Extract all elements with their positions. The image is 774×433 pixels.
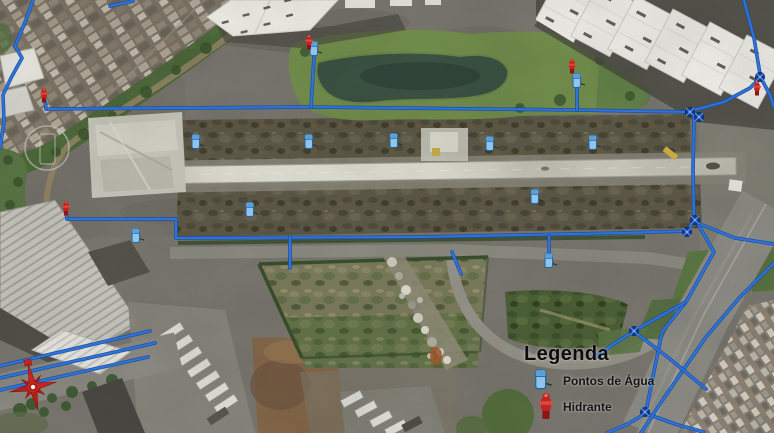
water-pipe-connector-east: [693, 116, 694, 219]
water-point-marker: [545, 254, 557, 268]
water-pipe-curve-northeast: [694, 79, 759, 110]
water-point-marker: [192, 135, 204, 149]
water-pipe-main-south: [67, 219, 688, 238]
legend-item-hydrant: Hidrante: [563, 400, 612, 414]
valve-icon: [685, 107, 694, 116]
water-pipe-favela-edge: [0, 0, 33, 148]
valve-icon: [755, 72, 764, 81]
water-point-icon: [529, 366, 553, 394]
hydrant-marker: [568, 59, 576, 74]
valve-icon: [694, 112, 703, 121]
hydrant-icon: [535, 392, 557, 420]
legend-item-water-points: Pontos de Água: [563, 374, 654, 388]
water-pipe-curve-northeast: [694, 79, 759, 110]
water-point-marker: [310, 42, 322, 56]
water-point-marker: [573, 74, 585, 88]
water-pipe-road-pipe-east: [641, 263, 774, 433]
valve-icon: [640, 407, 649, 416]
water-point-marker: [531, 190, 543, 204]
compass-rose-icon: [4, 358, 62, 416]
water-point-marker: [486, 137, 498, 151]
water-pipe-branch-pond: [311, 57, 314, 107]
water-point-marker: [305, 135, 317, 149]
water-point-marker: [589, 136, 601, 150]
valve-icon: [690, 215, 699, 224]
water-pipe-road-pipe-east: [641, 263, 774, 433]
water-pipe-branch-rubble: [452, 252, 461, 274]
hydrant-marker: [40, 88, 48, 103]
water-point-marker: [390, 134, 402, 148]
water-network-overlay: [0, 0, 774, 433]
hydrant-marker: [62, 201, 70, 216]
aerial-map: Legenda Pontos de Água Hidrante: [0, 0, 774, 433]
water-point-marker: [132, 229, 144, 243]
water-pipe-valve-branch-southeast: [647, 414, 704, 432]
valve-icon: [682, 227, 691, 236]
valve-icon: [629, 326, 638, 335]
legend-title: Legenda: [524, 343, 609, 366]
water-point-marker: [246, 203, 258, 217]
